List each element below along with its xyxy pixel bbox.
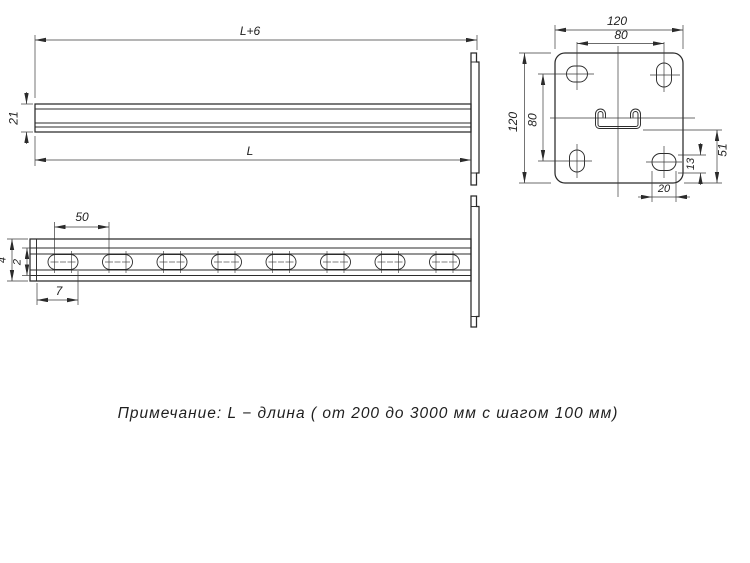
dim-label: 120: [506, 112, 520, 132]
dim-overall-length: L+6: [35, 24, 477, 98]
dim-label: 7: [56, 284, 64, 298]
dim-length: L: [35, 136, 471, 166]
dim-label: 4: [0, 257, 9, 263]
end-plate-edge: [471, 196, 479, 327]
dim-label: L+6: [240, 24, 261, 38]
side-view: L+6 L 21: [7, 24, 480, 185]
dim-label: 80: [526, 113, 540, 127]
technical-drawing: L+6 L 21: [0, 0, 750, 563]
dim-slot-pitch: 50: [55, 210, 110, 251]
dim-hole-height: 13: [678, 143, 706, 185]
dim-label: 120: [607, 14, 627, 28]
dim-inner: 2: [12, 248, 32, 276]
dim-label: L: [247, 144, 254, 158]
end-plate-edge: [471, 53, 479, 185]
dim-label: 2: [12, 259, 24, 266]
dim-hole-spacing-y: 80: [526, 74, 544, 161]
strut-body-outline: [35, 104, 471, 132]
drawing-note: Примечание: L − длина ( от 200 до 3000 м…: [118, 405, 619, 422]
dim-end-offset: 7: [37, 271, 78, 305]
dim-label: 51: [716, 143, 730, 156]
dim-label: 13: [685, 157, 697, 170]
dim-label: 50: [75, 210, 89, 224]
dim-label: 20: [657, 183, 671, 195]
dim-channel-to-edge: 51: [643, 130, 730, 183]
plate-view: 120 80 120 80 51 13: [506, 14, 730, 202]
dim-label: 21: [7, 111, 21, 125]
dim-profile-height: 21: [7, 92, 34, 144]
plan-view: 50 7 4 2: [0, 196, 479, 327]
plate-holes: [538, 42, 682, 178]
drawing-canvas: L+6 L 21: [0, 0, 750, 563]
dim-label: 80: [614, 28, 628, 42]
